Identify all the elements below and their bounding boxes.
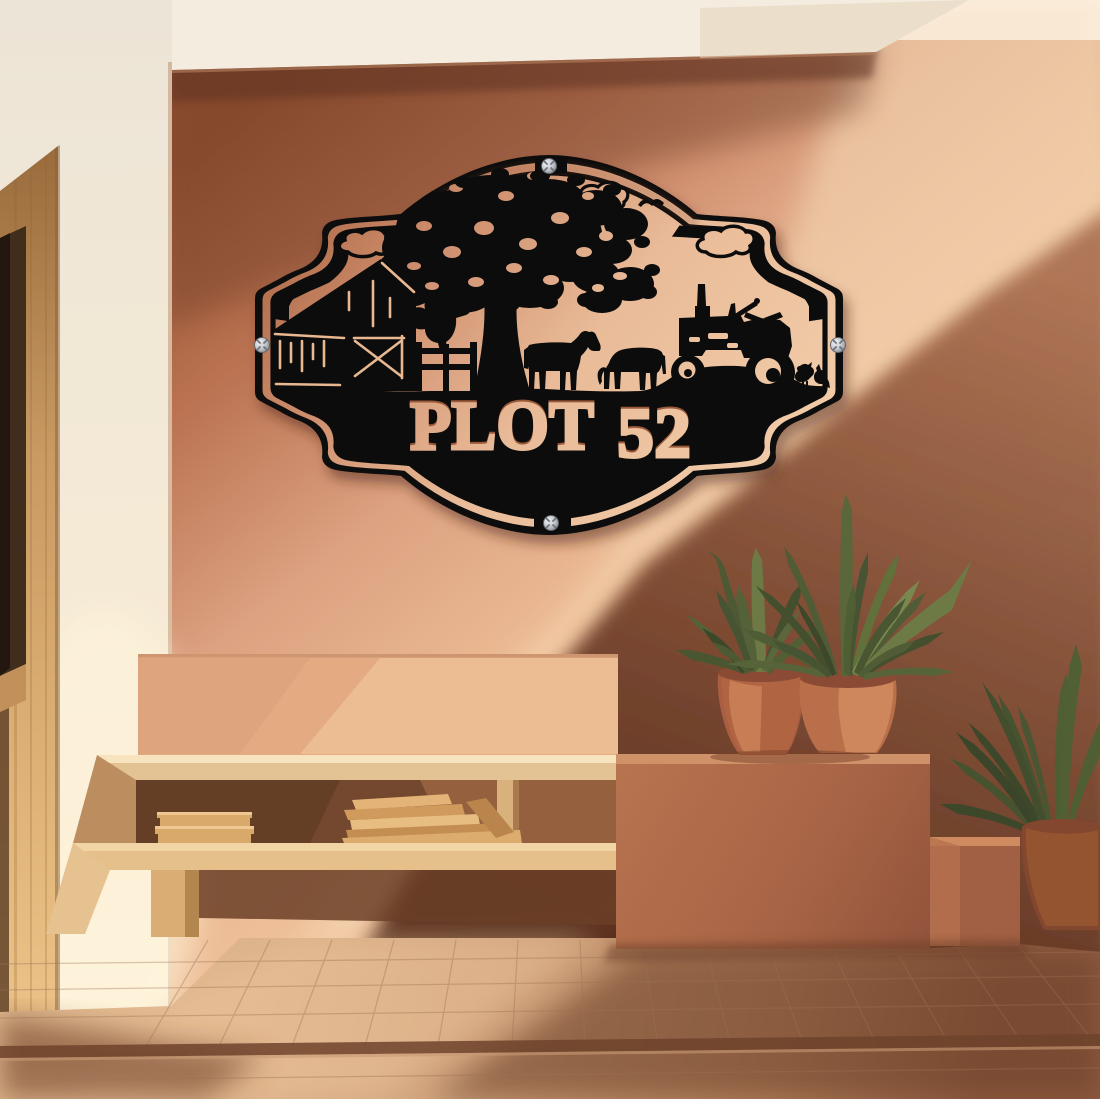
svg-text:52: 52: [617, 395, 691, 473]
svg-text:PLOT: PLOT: [410, 388, 594, 464]
